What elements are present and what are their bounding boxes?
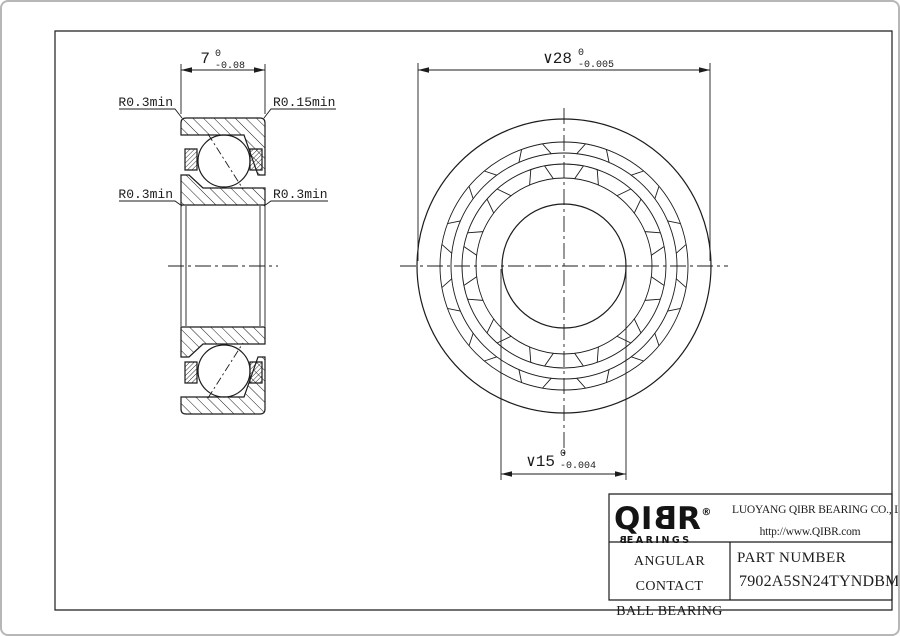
ball-section-top <box>198 135 250 187</box>
width-dimension-tol-upper: 0 <box>215 49 221 60</box>
front-view: ∨28 0 -0.005 ∨15 0 -0.004 <box>400 48 728 480</box>
bore-dimension-tol-upper: 0 <box>560 449 566 460</box>
width-dimension: 7 0 -0.08 <box>181 49 265 114</box>
product-type-line2: BALL BEARING <box>610 599 729 624</box>
company-website: http://www.QIBR.com <box>732 521 888 543</box>
bore-dimension-value: ∨15 <box>526 453 555 471</box>
product-type-line1: ANGULAR CONTACT <box>610 549 729 599</box>
cage-section-bottom-right <box>250 362 262 383</box>
fillet-label-top-left: R0.3min <box>118 95 182 118</box>
cage-section-top-left <box>185 149 197 170</box>
fillet-label-top-right: R0.15min <box>264 95 336 118</box>
contact-angle-line-top <box>208 134 243 189</box>
section-view: 7 0 -0.08 R0.3min R0.15min R0.3min R0.3m… <box>118 49 336 414</box>
width-dimension-value: 7 <box>200 50 210 68</box>
part-number-label: PART NUMBER <box>737 550 846 567</box>
fillet-label-bottom-right: R0.3min <box>264 187 328 206</box>
fillet-label-bottom-left: R0.3min <box>118 187 182 206</box>
svg-text:R0.3min: R0.3min <box>118 187 173 202</box>
registered-trademark-symbol: ® <box>701 507 711 518</box>
cage-section-top-right <box>250 149 262 170</box>
inner-ring-section-bottom <box>181 327 265 357</box>
company-info: LUOYANG QIBR BEARING CO., LTD http://www… <box>732 499 888 543</box>
cage-section-bottom-left <box>185 362 197 383</box>
od-dimension-tol-lower: -0.005 <box>578 60 614 71</box>
brand-logo-word: QIBR® <box>614 498 732 534</box>
svg-text:R0.3min: R0.3min <box>118 95 173 110</box>
brand-logo-mirrored-b: B <box>653 504 677 534</box>
drawing-sheet: 7 0 -0.08 R0.3min R0.15min R0.3min R0.3m… <box>0 0 900 636</box>
ball-section-bottom <box>198 345 250 397</box>
product-type: ANGULAR CONTACT BALL BEARING <box>610 549 729 624</box>
contact-angle-line-bottom <box>208 343 243 398</box>
inner-ring-section-top <box>181 175 265 205</box>
width-dimension-tol-lower: -0.08 <box>215 61 245 72</box>
part-number-value: 7902A5SN24TYNDBMP4 <box>739 573 889 591</box>
od-dimension-value: ∨28 <box>543 50 572 68</box>
svg-text:R0.15min: R0.15min <box>273 95 335 110</box>
od-dimension-tol-upper: 0 <box>578 48 584 59</box>
brand-logo: QIBR® BEARINGS <box>614 498 732 546</box>
company-name: LUOYANG QIBR BEARING CO., LTD <box>732 499 888 521</box>
bore-dimension-tol-lower: -0.004 <box>560 461 596 472</box>
svg-text:R0.3min: R0.3min <box>273 187 328 202</box>
